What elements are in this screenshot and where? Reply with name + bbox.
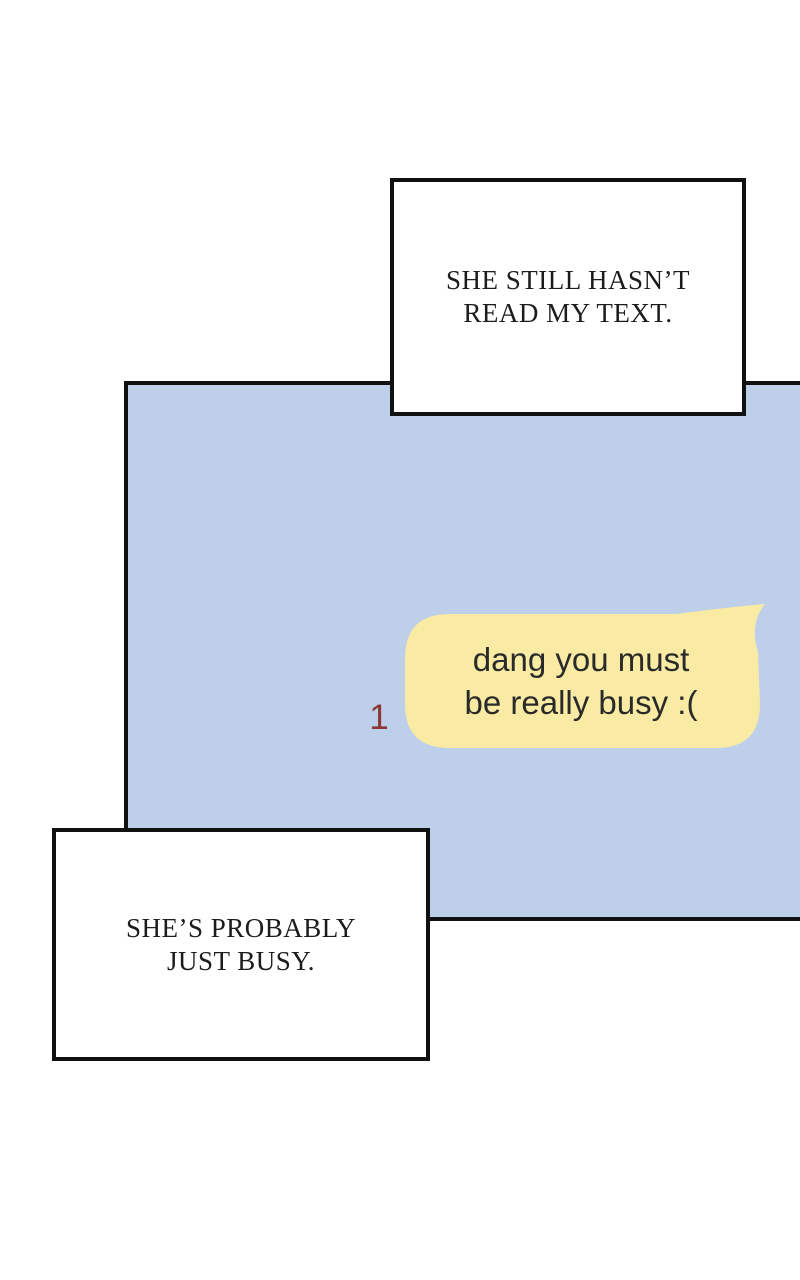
- chat-bubble-line: be really busy :(: [465, 681, 698, 724]
- narration-box-top: SHE STILL HASN’T READ MY TEXT.: [390, 178, 746, 416]
- comic-page: SHE STILL HASN’T READ MY TEXT. dang you …: [0, 0, 800, 1280]
- narration-line: SHE’S PROBABLY: [126, 912, 356, 945]
- narration-box-bottom: SHE’S PROBABLY JUST BUSY.: [52, 828, 430, 1061]
- chat-bubble-line: dang you must: [473, 638, 689, 681]
- narration-line: READ MY TEXT.: [463, 297, 672, 330]
- narration-line: JUST BUSY.: [167, 945, 315, 978]
- chat-bubble-text: dang you must be really busy :(: [405, 614, 757, 748]
- narration-line: SHE STILL HASN’T: [446, 264, 690, 297]
- unread-count-badge: 1: [366, 699, 392, 737]
